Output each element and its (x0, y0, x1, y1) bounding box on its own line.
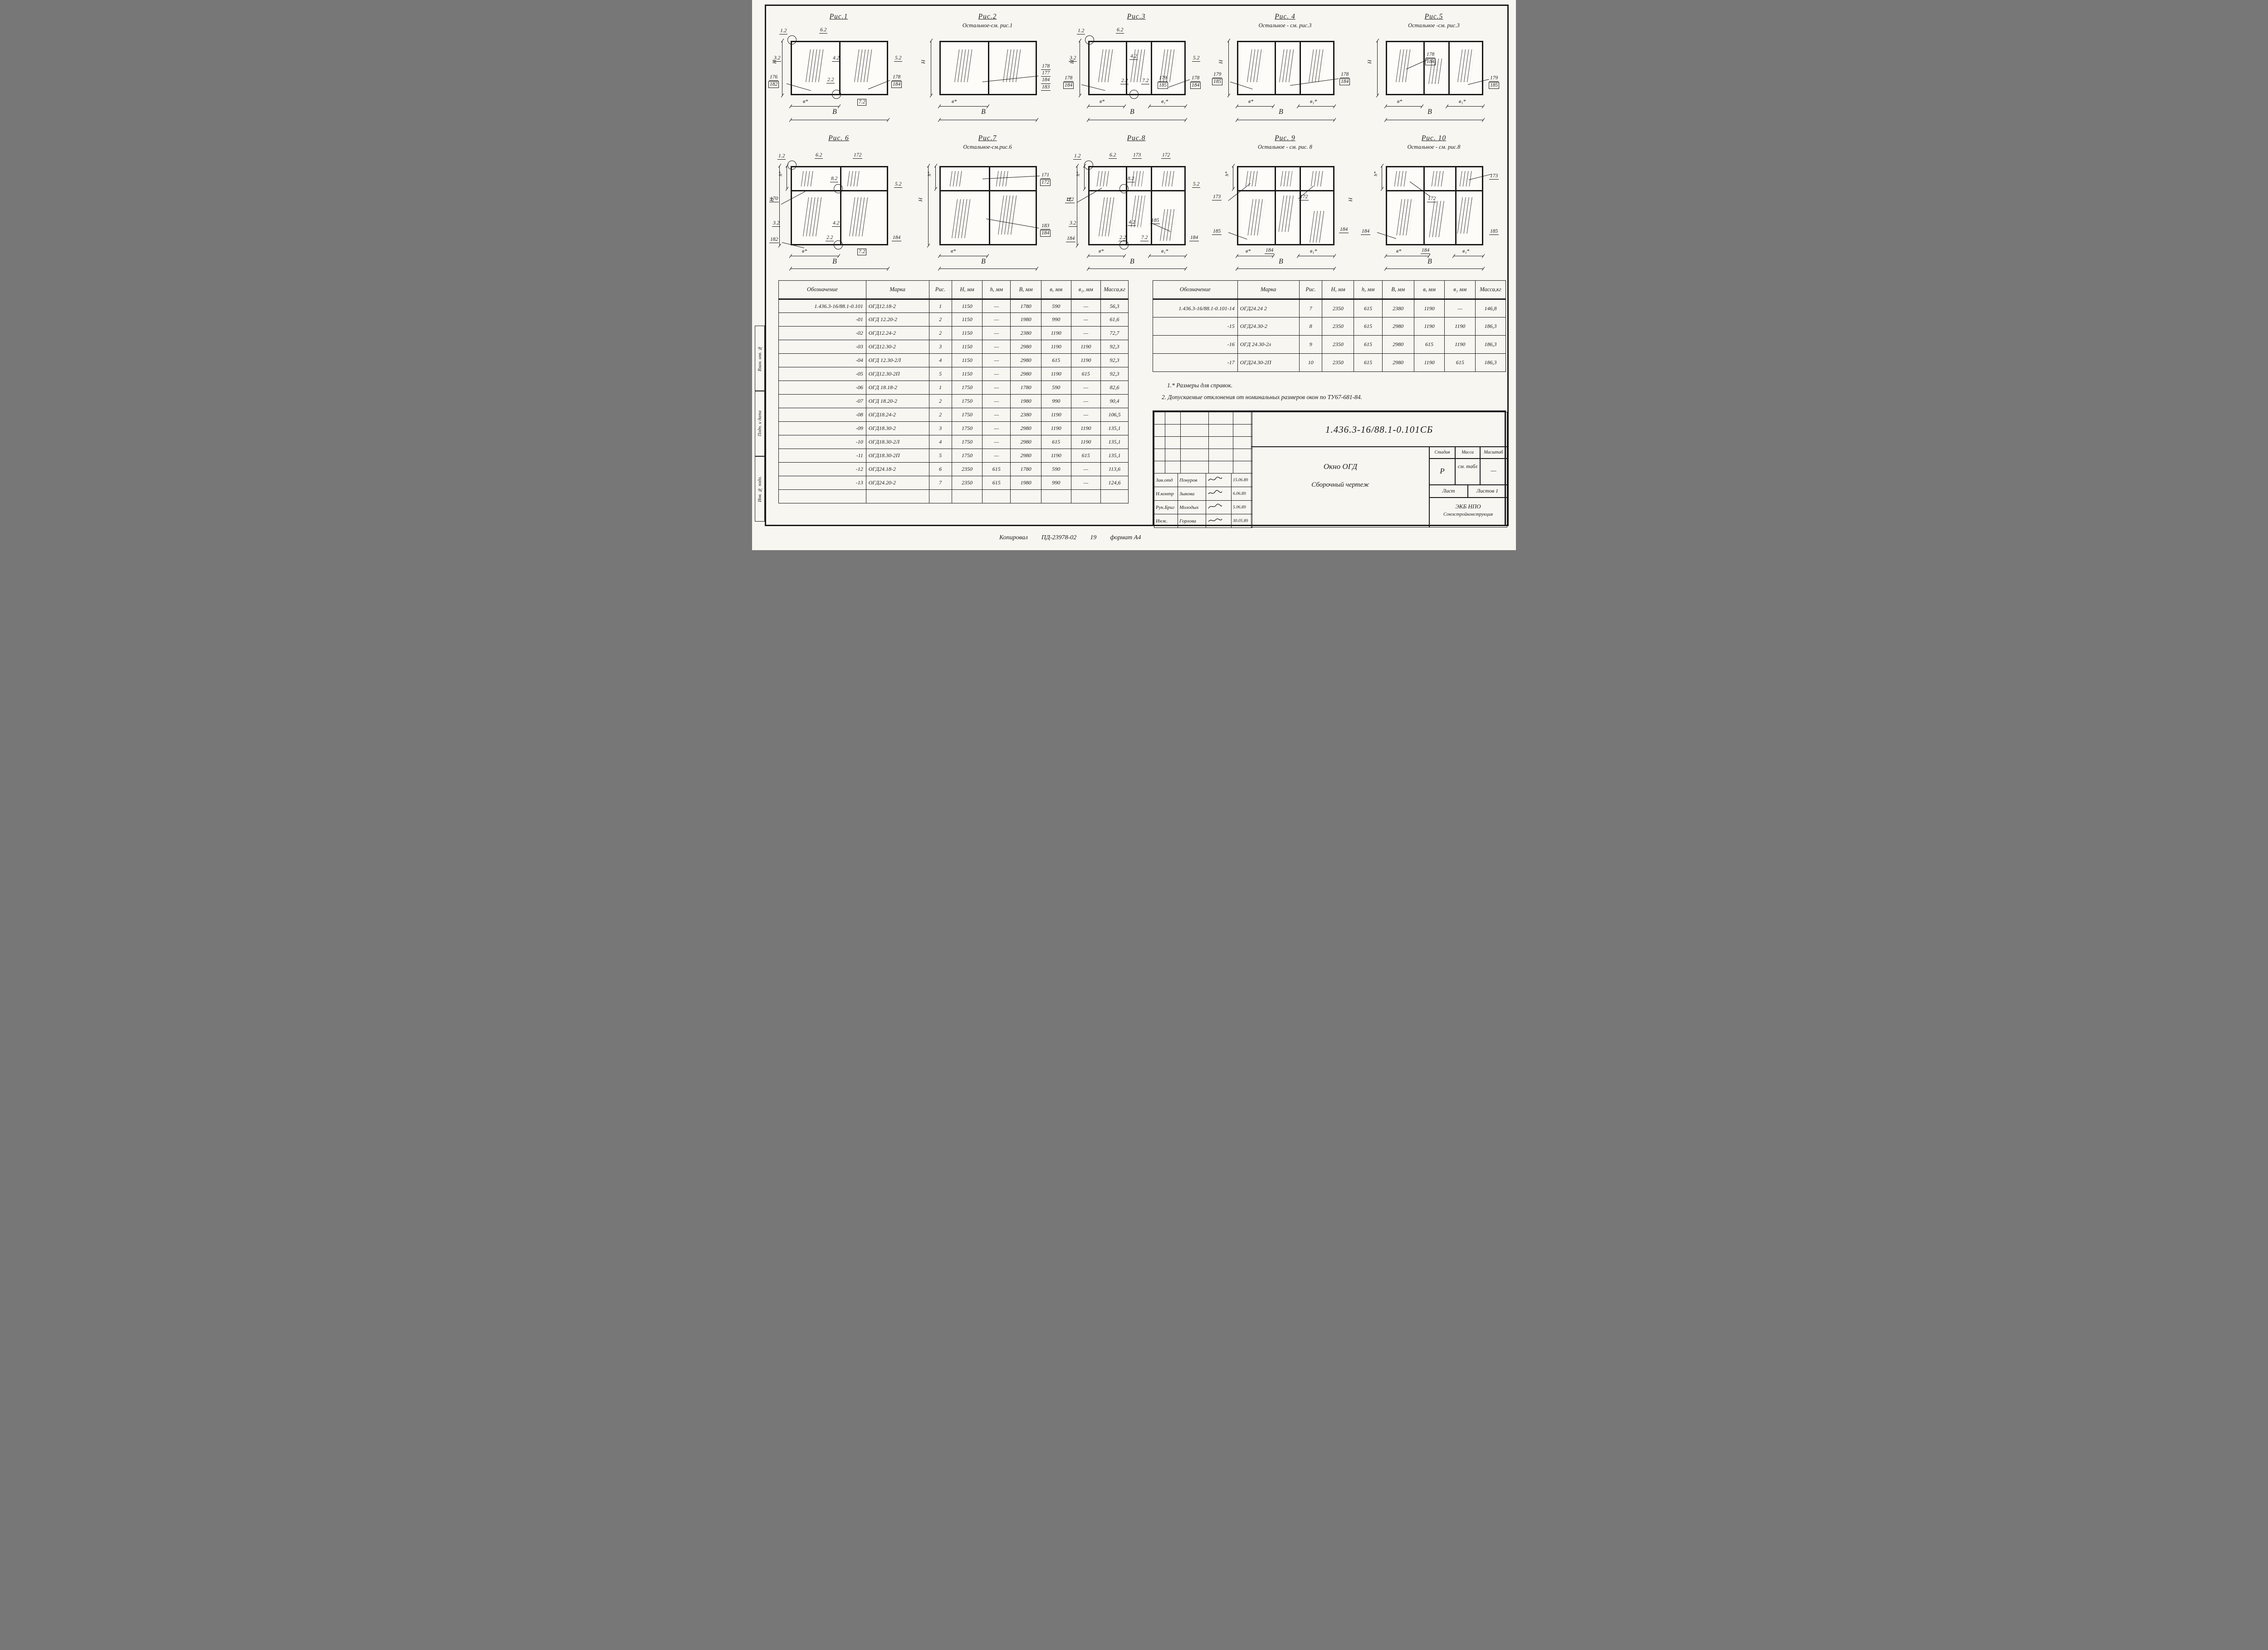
dim-line-h (1084, 166, 1085, 189)
table-cell: 615 (982, 463, 1011, 476)
table-cell: ОГД18.24-2 (866, 408, 929, 422)
window-drawing (1386, 166, 1483, 245)
callout-label: 182 (769, 237, 779, 243)
table-cell: 615 (1071, 449, 1101, 463)
header-cell: в₁ мм (1445, 281, 1476, 299)
callout-label: 176 (769, 74, 778, 81)
table-row: -13ОГД24.20-2723506151980990—124,6 (779, 476, 1129, 490)
sig-role: Инж. (1154, 514, 1178, 528)
figure-6: Рис. 6 1.2 6.2 172 8.2 5.2 170 3.2 4.2 1… (766, 134, 912, 278)
callout-circle (1119, 184, 1129, 193)
callout-circle (787, 35, 797, 44)
table-cell: 113,6 (1101, 463, 1129, 476)
table-cell: 72,7 (1101, 327, 1129, 340)
figure-3: Рис.3 1.2 6.2 3.2 4.2 5.2 178184 2.2 7.2… (1063, 13, 1209, 132)
table-row: -12ОГД24.18-2623506151780590—113,6 (779, 463, 1129, 476)
table-row: -09ОГД18.30-231750—298011901190135,1 (779, 422, 1129, 435)
copy-number: 19 (1090, 534, 1096, 542)
left-spec-table: ОбозначениеМаркаРис.Н, ммh, ммВ, ммв, мм… (778, 280, 1129, 503)
copied-label: Копировал (999, 534, 1028, 542)
table-cell: ОГД24.24 2 (1237, 299, 1299, 317)
dim-label-B: В (1279, 258, 1283, 266)
dim-line-B (1386, 268, 1483, 269)
callout-label: 5.2 (1192, 55, 1200, 62)
callout-label: 183 (1041, 223, 1050, 229)
callout-label: 5.2 (1192, 181, 1200, 188)
dim-label-H: Н (1347, 198, 1354, 202)
table-cell: 1750 (952, 449, 982, 463)
table-cell: ОГД12.18-2 (866, 299, 929, 313)
glass-hatch (1003, 49, 1022, 82)
table-cell: 2350 (952, 463, 982, 476)
glass-hatch (952, 199, 971, 238)
table-cell: 1190 (1414, 317, 1445, 336)
callout-stack: 179185 (1489, 75, 1499, 89)
window-drawing (791, 166, 888, 245)
callout-label: 7.2 (857, 249, 866, 255)
table-cell: -09 (779, 422, 866, 435)
footer-line: Копировал ПД-23978-02 19 формат А4 (999, 534, 1141, 542)
table-row: 1.436.3-16/88.1-0.101-14ОГД24.24 2723506… (1153, 299, 1506, 317)
table-cell: ОГД 12.30-2Л (866, 354, 929, 367)
dim-label-h: h* (1076, 171, 1081, 176)
table-cell: 2980 (1011, 435, 1041, 449)
table-cell: 2980 (1011, 422, 1041, 435)
table-cell: 2980 (1382, 354, 1414, 372)
dim-label-B: В (1279, 108, 1283, 116)
glass-hatch (954, 49, 973, 82)
table-cell: 92,3 (1101, 354, 1129, 367)
stamp-podp-data: Подп. и дата (755, 391, 765, 456)
table-cell: 2350 (1322, 299, 1354, 317)
figure-subtitle: Остальное - см. рис. 8 (1212, 144, 1358, 151)
table-row (779, 490, 1129, 503)
callout-stack: 178184 (1063, 75, 1074, 89)
glass-hatch (1098, 49, 1115, 82)
dim-label-b: в* (1396, 248, 1401, 254)
header-cell: Масса,кг (1476, 281, 1506, 299)
table-cell: 92,3 (1101, 367, 1129, 381)
table-cell: ОГД24.18-2 (866, 463, 929, 476)
dim-line-b1 (1149, 106, 1186, 107)
dim-line-height (1077, 166, 1077, 245)
callout-label: 2.2 (1120, 78, 1129, 84)
dim-label-H: Н (1366, 60, 1373, 64)
dim-label-H: Н (917, 198, 924, 202)
stamp-label: Инв. № подл. (758, 476, 763, 502)
dim-line-b (1237, 106, 1273, 107)
callout-label: 1.2 (1073, 153, 1081, 160)
dim-label-B: В (981, 258, 986, 266)
callout-circle (787, 161, 797, 170)
table-cell: 1190 (1041, 367, 1071, 381)
table-cell: 135,1 (1101, 449, 1129, 463)
table-cell: 2980 (1011, 449, 1041, 463)
table-cell: 2 (929, 408, 952, 422)
glass-hatch (1099, 197, 1117, 236)
table-cell (982, 490, 1011, 503)
dim-line-height (1080, 41, 1080, 95)
table-cell: 1780 (1011, 463, 1041, 476)
figure-8: Рис.8 1.2 6.2 173 172 8.2 5.2 172 3.2 4.… (1063, 134, 1209, 278)
table-cell: 1190 (1071, 422, 1101, 435)
table-cell: 2350 (1322, 317, 1354, 336)
dim-line-b1 (1298, 106, 1334, 107)
dim-line-b (1237, 256, 1273, 256)
signature-scribble (1206, 474, 1232, 487)
callout-label: 178 (1041, 63, 1051, 70)
dim-line-height (1377, 41, 1378, 95)
callout-label: 184 (891, 81, 902, 88)
header-cell: Марка (866, 281, 929, 299)
table-cell: 1780 (1011, 299, 1041, 313)
callout-label: 185 (1489, 229, 1499, 235)
callout-label: 172 (1299, 194, 1309, 200)
table-cell: 3 (929, 340, 952, 354)
table-cell: 1150 (952, 354, 982, 367)
table-cell: 2980 (1011, 340, 1041, 354)
table-cell: ОГД24.30-2П (1237, 354, 1299, 372)
table-cell: 1190 (1414, 299, 1445, 317)
table-cell: 1190 (1414, 354, 1445, 372)
table-cell: ОГД24.20-2 (866, 476, 929, 490)
title-block: Зав.отд Понуров 15.06.89 Н.контр Зыкова … (1153, 410, 1506, 526)
table-cell: 146,8 (1476, 299, 1506, 317)
scale-label: Масштаб (1480, 446, 1507, 459)
mullion (1151, 42, 1152, 94)
header-cell: Н, мм (1322, 281, 1354, 299)
table-cell: 1.436.3-16/88.1-0.101-14 (1153, 299, 1238, 317)
sig-date: 30.05.89 (1232, 514, 1252, 528)
header-cell: Масса,кг (1101, 281, 1129, 299)
callout-label: 6.2 (1109, 152, 1117, 159)
dim-label-b: в* (803, 98, 808, 105)
callout-label: 2.2 (826, 235, 834, 241)
table-cell: 615 (1071, 367, 1101, 381)
table-cell: 990 (1041, 313, 1071, 327)
dim-line-b (1088, 256, 1124, 256)
transom (1387, 190, 1482, 191)
table-cell: 1150 (952, 313, 982, 327)
table-cell: ОГД18.30-2П (866, 449, 929, 463)
dim-line-b (1386, 106, 1422, 107)
header-cell: В, мм (1011, 281, 1041, 299)
mullion (840, 167, 841, 244)
table-cell: — (982, 354, 1011, 367)
glass-hatch (803, 197, 822, 236)
table-cell: — (982, 313, 1011, 327)
callout-stack: 178184 (1425, 52, 1436, 65)
dim-label-b: в* (1397, 98, 1402, 105)
glass-hatch (950, 171, 964, 186)
glass-hatch (1247, 49, 1264, 82)
table-cell (1071, 490, 1101, 503)
sig-date: 5.06.89 (1232, 501, 1252, 514)
sig-name: Горлова (1178, 514, 1206, 528)
dim-label-H: Н (768, 198, 775, 202)
table-cell: -15 (1153, 317, 1238, 336)
glass-hatch (1457, 49, 1475, 82)
note-1: 1.* Размеры для справок. (1167, 382, 1232, 389)
stamp-inv-podl: Инв. № подл. (755, 456, 765, 522)
dim-label-b: в* (802, 248, 807, 254)
table-cell: 615 (982, 476, 1011, 490)
drawing-sheet: Рис.1 1.2 6.2 3.2 4.2 5.2 176182 2.2 178… (752, 0, 1516, 550)
header-cell: Обозначение (1153, 281, 1238, 299)
table-row: -05ОГД12.30-2П51150—2980119061592,3 (779, 367, 1129, 381)
sig-role: Рук.Бриг (1154, 501, 1178, 514)
table-cell: 615 (1041, 435, 1071, 449)
dim-line-B (939, 120, 1037, 120)
table-cell: 2980 (1382, 317, 1414, 336)
table-cell: 6 (929, 463, 952, 476)
table-cell: 1190 (1041, 449, 1071, 463)
table-cell (779, 490, 866, 503)
table-cell: 5 (929, 367, 952, 381)
table-cell: 2380 (1382, 299, 1414, 317)
table-cell: 615 (1354, 317, 1382, 336)
right-spec-table: ОбозначениеМаркаРис.Н, ммh, ммВ, ммв, мм… (1153, 280, 1506, 372)
figure-title: Рис. 4 (1212, 13, 1358, 21)
dim-label-B: В (1427, 258, 1432, 266)
table-row: -17ОГД24.30-2П10235061529801190615186,3 (1153, 354, 1506, 372)
header-cell: Рис. (1299, 281, 1322, 299)
window-drawing (939, 41, 1037, 95)
dim-line-b (1088, 106, 1124, 107)
table-cell: 1750 (952, 381, 982, 395)
callout-label: 6.2 (1116, 27, 1124, 34)
callout-label: 184 (892, 235, 901, 241)
table-cell: 4 (929, 435, 952, 449)
callout-label: 1.2 (779, 28, 787, 34)
dim-line-b (939, 106, 988, 107)
mullion (1455, 167, 1457, 244)
stamp-label: Подп. и дата (758, 410, 763, 436)
callout-label: 172 (1161, 152, 1171, 159)
table-cell: 1190 (1071, 435, 1101, 449)
table-cell: -13 (779, 476, 866, 490)
table-cell: -07 (779, 395, 866, 408)
callout-label: 179 (1489, 75, 1499, 82)
sig-name: Молодых (1178, 501, 1206, 514)
table-cell: 186,3 (1476, 336, 1506, 354)
glass-hatch (847, 171, 861, 186)
table-row: -03ОГД12.30-231150—29801190119092,3 (779, 340, 1129, 354)
dim-label-h: h* (927, 171, 932, 176)
dim-label-b1: в₁* (1161, 98, 1168, 105)
figure-4: Рис. 4 Остальное - см. рис.3 179185 1781… (1212, 13, 1358, 132)
table-cell: 1980 (1011, 313, 1041, 327)
glass-hatch (1311, 171, 1324, 186)
table-cell: 615 (1354, 299, 1382, 317)
table-cell: 1190 (1071, 354, 1101, 367)
callout-label: 173 (1212, 194, 1222, 200)
table-cell: 7 (1299, 299, 1322, 317)
org-line2: Союзстройконструкция (1429, 512, 1507, 517)
callout-stack: 178184 (1339, 72, 1350, 85)
glass-hatch (1247, 199, 1265, 235)
callout-circle (1084, 161, 1093, 170)
table-cell: 1150 (952, 299, 982, 313)
format-label: формат А4 (1110, 534, 1141, 542)
dim-label-b: в* (951, 248, 956, 254)
dim-label-b: в* (1100, 98, 1105, 105)
dim-line-h (1382, 166, 1382, 189)
callout-label: 185 (1212, 78, 1222, 85)
dim-label-H: Н (771, 60, 778, 64)
callout-label: 184 (1421, 248, 1430, 254)
window-drawing (1386, 41, 1483, 95)
callout-circle (834, 184, 843, 193)
table-cell: -01 (779, 313, 866, 327)
dim-label-b1: в₁* (1459, 98, 1466, 105)
table-row: -11ОГД18.30-2П51750—29801190615135,1 (779, 449, 1129, 463)
table-cell: 1 (929, 381, 952, 395)
callout-label: 6.2 (815, 152, 823, 159)
dim-line-b (791, 256, 839, 256)
table-cell: 615 (1445, 354, 1476, 372)
table-cell: -10 (779, 435, 866, 449)
stamp-vzam-inv: Взам. инв. № (755, 326, 765, 391)
table-row: -16ОГД 24.30-2л9235061529806151190186,3 (1153, 336, 1506, 354)
transom (1090, 190, 1184, 191)
callout-label: 173 (1132, 152, 1142, 159)
table-row: -01ОГД 12.20-221150—1980990—61,6 (779, 313, 1129, 327)
table-cell: 1190 (1041, 408, 1071, 422)
dim-line-B (1088, 120, 1186, 120)
table-cell: 135,1 (1101, 422, 1129, 435)
table-cell (1101, 490, 1129, 503)
glass-hatch (1429, 201, 1446, 237)
table-row: -08ОГД18.24-221750—23801190—106,5 (779, 408, 1129, 422)
figure-10: Рис. 10 Остальное - см. рис.8 173 172 18… (1361, 134, 1507, 278)
table-cell: ОГД12.30-2П (866, 367, 929, 381)
callout-circle (1119, 240, 1129, 249)
stage-label: Стадия (1429, 446, 1456, 459)
callout-label: 178 (1426, 52, 1435, 58)
header-cell: Обозначение (779, 281, 866, 299)
dim-line-B (791, 268, 888, 269)
table-cell: 1750 (952, 395, 982, 408)
table-cell (1041, 490, 1071, 503)
sheets-total-label: Листов 1 (1467, 484, 1507, 498)
table-cell: 615 (1354, 354, 1382, 372)
doc-number: 1.436.3-16/88.1-0.101СБ (1251, 412, 1507, 447)
figure-subtitle: Остальное - см. рис.8 (1361, 144, 1507, 151)
dim-label-B: В (1130, 108, 1134, 116)
header-cell: в, мм (1041, 281, 1071, 299)
table-row: -15ОГД24.30-282350615298011901190186,3 (1153, 317, 1506, 336)
table-cell: 9 (1299, 336, 1322, 354)
callout-label: 7.2 (1141, 78, 1149, 84)
dim-line-b (1386, 256, 1429, 256)
header-cell: В, мм (1382, 281, 1414, 299)
window-drawing (939, 166, 1037, 245)
table-cell: 2 (929, 313, 952, 327)
table-cell: 90,4 (1101, 395, 1129, 408)
mullion (1448, 42, 1450, 94)
callout-label: 1.2 (777, 153, 786, 160)
mullion (1275, 42, 1276, 94)
table-cell: 615 (1414, 336, 1445, 354)
callout-label: 185 (1212, 229, 1222, 235)
dim-label-H: Н (920, 60, 927, 64)
mullion (839, 42, 841, 94)
note-2: 2. Допускаемые отклонения от номинальных… (1162, 394, 1443, 401)
table-cell: 106,5 (1101, 408, 1129, 422)
dim-label-B: В (832, 108, 837, 116)
dim-label-H: Н (1217, 60, 1224, 64)
glass-hatch (806, 49, 825, 82)
dim-label-h: h* (778, 171, 783, 176)
callout-label: 178 (1064, 75, 1073, 82)
table-cell: — (982, 381, 1011, 395)
table-cell: ОГД 18.20-2 (866, 395, 929, 408)
table-row: -06ОГД 18.18-211750—1780590—82,6 (779, 381, 1129, 395)
figure-2: Рис.2 Остальное-см. рис.1 178177184183 в… (914, 13, 1061, 132)
table-cell: 1190 (1071, 340, 1101, 354)
table-cell: — (1071, 313, 1101, 327)
table-cell: 92,3 (1101, 340, 1129, 354)
table-cell: 590 (1041, 463, 1071, 476)
table-cell: 1150 (952, 367, 982, 381)
table-cell: -02 (779, 327, 866, 340)
callout-label: 7.2 (1140, 235, 1149, 241)
sig-name: Понуров (1178, 474, 1206, 487)
callout-circle (832, 90, 841, 99)
mullion (1151, 167, 1152, 244)
callout-label: 184 (1063, 82, 1074, 89)
header-cell: Н, мм (952, 281, 982, 299)
dim-line-B (1088, 268, 1186, 269)
glass-hatch (1457, 197, 1474, 234)
table-cell: -06 (779, 381, 866, 395)
table-cell: 1190 (1041, 340, 1071, 354)
table-cell: 124,6 (1101, 476, 1129, 490)
figure-title: Рис.3 (1063, 13, 1209, 21)
dim-line-height (1228, 41, 1229, 95)
figure-subtitle: Остальное -см. рис.3 (1361, 22, 1507, 29)
table-cell: 1 (929, 299, 952, 313)
sig-role: Зав.отд (1154, 474, 1178, 487)
table-cell: 1780 (1011, 381, 1041, 395)
callout-label: 178 (1340, 72, 1349, 78)
table-cell: 10 (1299, 354, 1322, 372)
callout-label: 172 (1427, 196, 1437, 202)
dim-line-height (779, 166, 780, 245)
table-cell: 5 (929, 449, 952, 463)
table-cell: -11 (779, 449, 866, 463)
dim-line-B (1237, 120, 1334, 120)
callout-label: 178 (1191, 75, 1200, 82)
callout-label: 179 (1158, 75, 1168, 82)
table-cell: 1150 (952, 327, 982, 340)
callout-label: 184 (1190, 82, 1201, 89)
table-cell: 1190 (1041, 327, 1071, 340)
table-cell: 61,6 (1101, 313, 1129, 327)
sheet-number-label: Лист (1429, 484, 1468, 498)
callout-label: 172 (853, 152, 862, 159)
figure-title: Рис.7 (914, 134, 1061, 142)
table-cell: — (982, 435, 1011, 449)
table-cell: — (982, 449, 1011, 463)
glass-hatch (1310, 211, 1326, 243)
glass-hatch (801, 171, 815, 186)
table-cell: 1190 (1445, 317, 1476, 336)
figure-title: Рис.2 (914, 13, 1061, 21)
dim-label-b1: в₁* (1310, 98, 1317, 105)
table-cell: 2350 (1322, 336, 1354, 354)
